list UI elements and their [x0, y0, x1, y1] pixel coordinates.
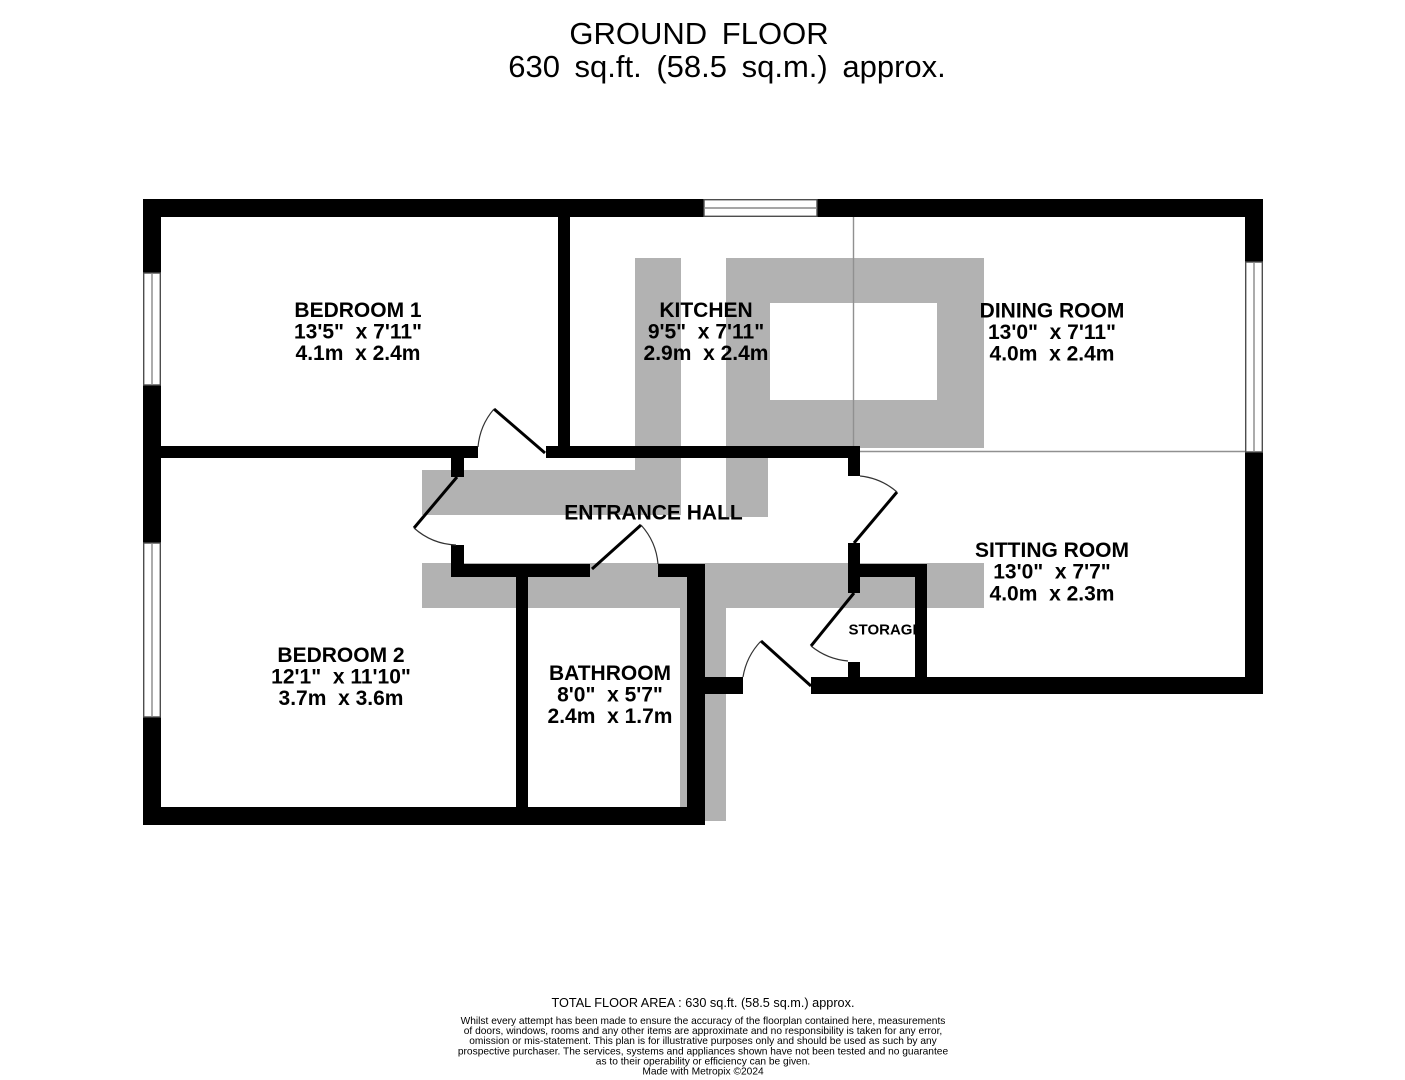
svg-text:SITTING ROOM: SITTING ROOM	[975, 539, 1129, 562]
svg-text:4.0m x 2.4m: 4.0m x 2.4m	[990, 343, 1115, 366]
svg-text:TOTAL FLOOR AREA : 630 sq.ft.: TOTAL FLOOR AREA : 630 sq.ft. (58.5 sq.m…	[552, 996, 855, 1010]
svg-text:DINING ROOM: DINING ROOM	[980, 300, 1125, 323]
svg-text:2.4m x 1.7m: 2.4m x 1.7m	[548, 705, 673, 728]
svg-text:GROUND FLOOR: GROUND FLOOR	[569, 16, 828, 51]
svg-text:12'1" x 11'10": 12'1" x 11'10"	[271, 665, 411, 688]
svg-text:2.9m x 2.4m: 2.9m x 2.4m	[644, 342, 769, 365]
svg-text:STORAGE: STORAGE	[849, 621, 923, 638]
svg-text:BEDROOM 1: BEDROOM 1	[294, 299, 422, 322]
svg-text:13'0" x 7'11": 13'0" x 7'11"	[988, 321, 1116, 344]
svg-text:13'5" x 7'11": 13'5" x 7'11"	[294, 321, 422, 344]
svg-text:4.1m x 2.4m: 4.1m x 2.4m	[296, 342, 421, 365]
svg-text:BEDROOM 2: BEDROOM 2	[277, 644, 404, 667]
svg-text:KITCHEN: KITCHEN	[659, 299, 752, 322]
svg-text:8'0" x 5'7": 8'0" x 5'7"	[557, 684, 663, 707]
svg-text:Made with Metropix ©2024: Made with Metropix ©2024	[642, 1067, 764, 1078]
svg-text:BATHROOM: BATHROOM	[549, 662, 671, 685]
svg-text:9'5" x 7'11": 9'5" x 7'11"	[648, 321, 764, 344]
svg-text:3.7m x 3.6m: 3.7m x 3.6m	[279, 687, 404, 710]
svg-text:13'0" x 7'7": 13'0" x 7'7"	[993, 561, 1110, 584]
svg-text:630 sq.ft. (58.5 sq.m.) approx: 630 sq.ft. (58.5 sq.m.) approx.	[508, 49, 946, 84]
svg-text:4.0m x 2.3m: 4.0m x 2.3m	[990, 582, 1115, 605]
svg-text:ENTRANCE HALL: ENTRANCE HALL	[564, 502, 743, 525]
